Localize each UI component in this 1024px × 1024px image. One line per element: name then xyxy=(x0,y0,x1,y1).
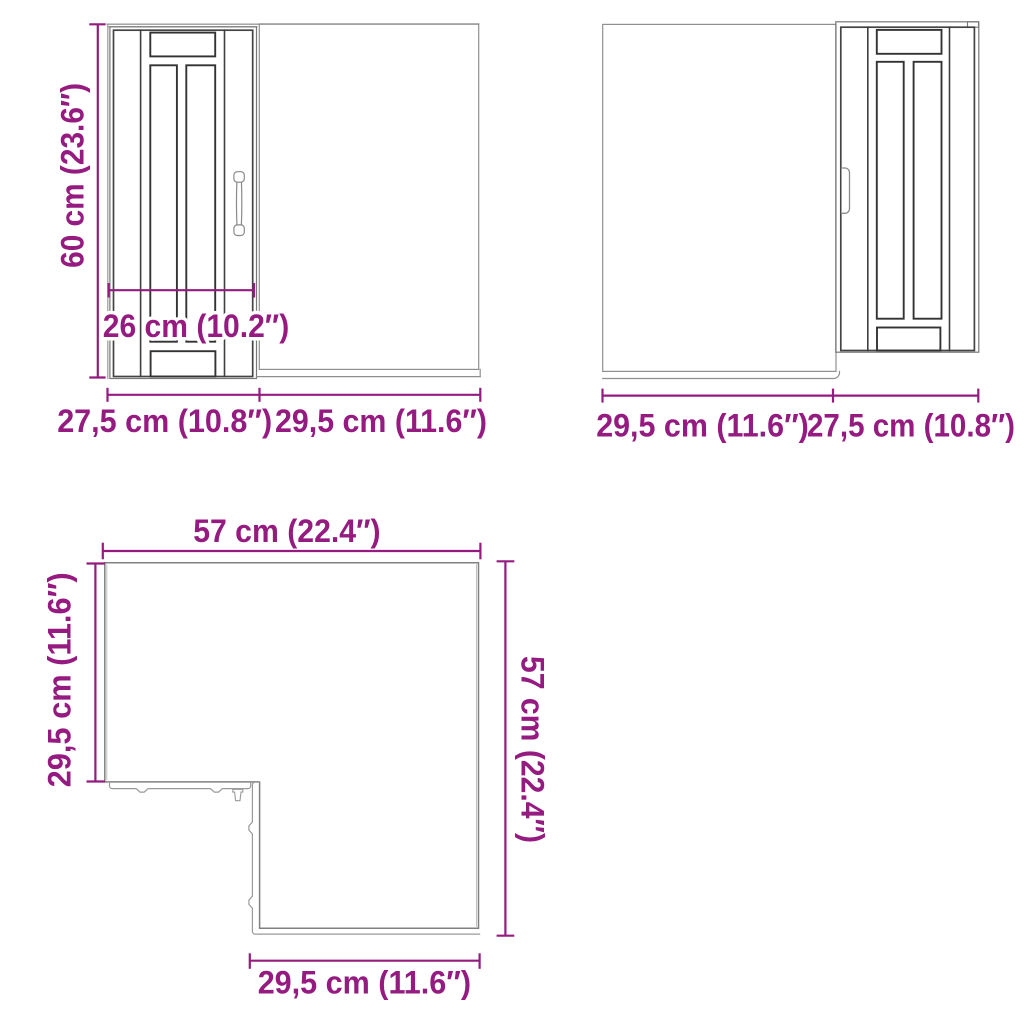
svg-text:29,5 cm (11.6″): 29,5 cm (11.6″) xyxy=(596,408,809,444)
svg-text:29,5 cm (11.6″): 29,5 cm (11.6″) xyxy=(275,403,487,439)
svg-text:27,5 cm (10.8″): 27,5 cm (10.8″) xyxy=(807,408,1015,444)
svg-text:57 cm (22.4″): 57 cm (22.4″) xyxy=(515,656,551,843)
svg-text:29,5 cm (11.6″): 29,5 cm (11.6″) xyxy=(258,965,471,1001)
svg-text:57 cm (22.4″): 57 cm (22.4″) xyxy=(193,513,380,549)
svg-text:29,5 cm (11.6″): 29,5 cm (11.6″) xyxy=(41,572,77,787)
svg-text:60 cm (23.6″): 60 cm (23.6″) xyxy=(55,83,91,268)
svg-text:27,5 cm (10.8″): 27,5 cm (10.8″) xyxy=(57,403,272,439)
svg-text:26 cm (10.2″): 26 cm (10.2″) xyxy=(103,308,289,344)
